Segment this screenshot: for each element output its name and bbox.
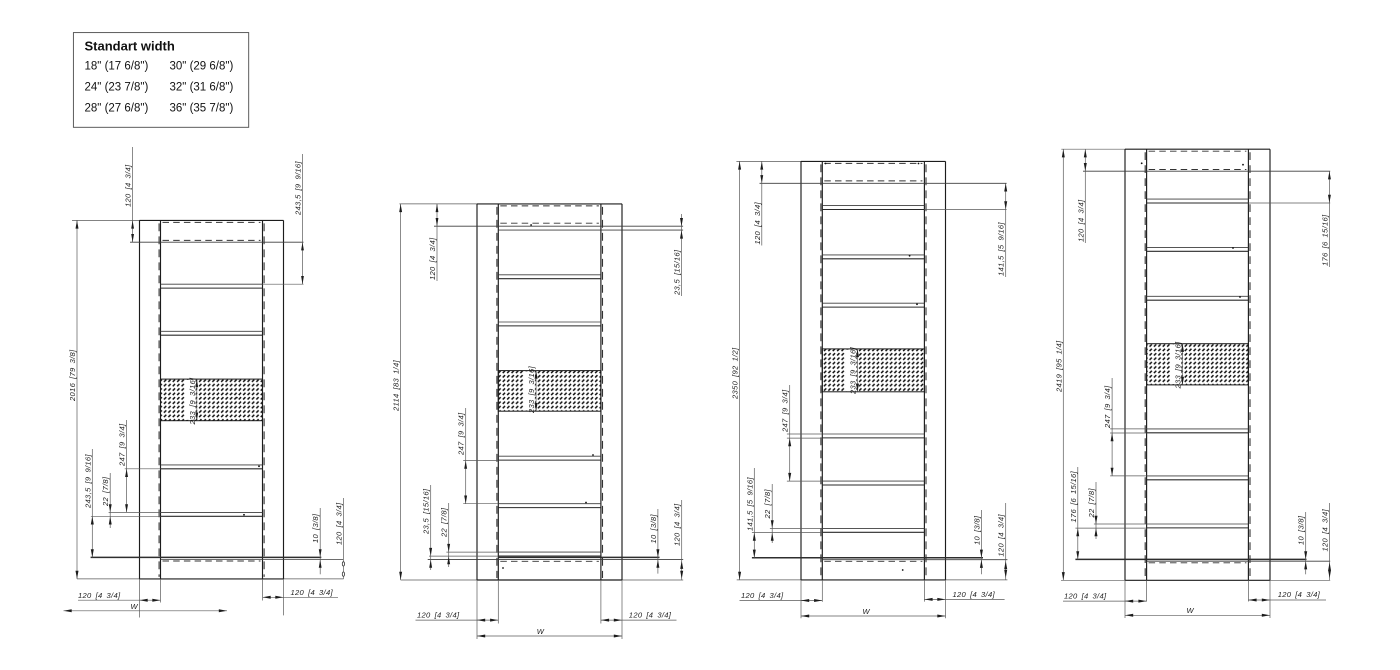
svg-text:247 [9 3/4]: 247 [9 3/4] — [1103, 385, 1112, 429]
svg-text:W: W — [1187, 606, 1195, 615]
svg-text:120 [4 3/4]: 120 [4 3/4] — [417, 611, 460, 620]
svg-text:120 [4 3/4]: 120 [4 3/4] — [334, 502, 343, 545]
svg-text:141,5 [5 9/16]: 141,5 [5 9/16] — [745, 477, 754, 531]
svg-text:Standart width: Standart width — [85, 39, 175, 54]
svg-text:10 [3/8]: 10 [3/8] — [311, 513, 320, 543]
svg-text:120 [4 3/4]: 120 [4 3/4] — [1076, 199, 1085, 242]
svg-text:W: W — [131, 602, 139, 611]
svg-text:23,5 [15/16]: 23,5 [15/16] — [673, 249, 682, 296]
svg-text:2114 [83 1/4]: 2114 [83 1/4] — [392, 360, 401, 412]
svg-text:2419 [95 1/4]: 2419 [95 1/4] — [1054, 340, 1063, 393]
svg-text:120 [4 3/4]: 120 [4 3/4] — [741, 591, 784, 600]
svg-text:10 [3/8]: 10 [3/8] — [1297, 515, 1306, 545]
svg-text:22 [7/8]: 22 [7/8] — [1087, 488, 1096, 519]
svg-text:243,5 [9 9/16]: 243,5 [9 9/16] — [83, 454, 92, 509]
svg-text:10 [3/8]: 10 [3/8] — [972, 515, 981, 545]
svg-text:233 [9 3/16]: 233 [9 3/16] — [188, 377, 197, 426]
svg-text:233 [9 3/16]: 233 [9 3/16] — [527, 365, 536, 414]
svg-text:120 [4 3/4]: 120 [4 3/4] — [997, 514, 1006, 557]
svg-text:22 [7/8]: 22 [7/8] — [440, 507, 449, 538]
svg-text:120 [4 3/4]: 120 [4 3/4] — [953, 590, 996, 599]
svg-text:W: W — [863, 607, 871, 616]
svg-text:176 [6 15/16]: 176 [6 15/16] — [1320, 214, 1329, 266]
svg-text:120 [4 3/4]: 120 [4 3/4] — [1321, 509, 1330, 552]
svg-text:233 [9 3/16]: 233 [9 3/16] — [849, 346, 858, 395]
svg-text:32" (31 6/8"): 32" (31 6/8") — [170, 82, 234, 94]
svg-text:247 [9 3/4]: 247 [9 3/4] — [781, 389, 790, 433]
svg-text:120 [4 3/4]: 120 [4 3/4] — [428, 237, 437, 280]
svg-text:W: W — [537, 627, 545, 636]
svg-text:36" (35 7/8"): 36" (35 7/8") — [170, 103, 234, 115]
svg-text:243,5 [9 9/16]: 243,5 [9 9/16] — [294, 161, 303, 216]
svg-text:10 [3/8]: 10 [3/8] — [649, 514, 658, 544]
svg-text:120 [4 3/4]: 120 [4 3/4] — [753, 202, 762, 245]
svg-text:120 [4 3/4]: 120 [4 3/4] — [629, 611, 672, 620]
svg-text:120 [4 3/4]: 120 [4 3/4] — [78, 591, 121, 600]
svg-text:120 [4 3/4]: 120 [4 3/4] — [124, 164, 133, 207]
svg-text:30" (29 6/8"): 30" (29 6/8") — [170, 61, 234, 73]
svg-text:2016 [79 3/8]: 2016 [79 3/8] — [68, 349, 77, 402]
svg-text:120 [4 3/4]: 120 [4 3/4] — [1278, 590, 1321, 599]
svg-text:141,5 [5 9/16]: 141,5 [5 9/16] — [997, 222, 1006, 276]
svg-text:18" (17 6/8"): 18" (17 6/8") — [85, 61, 149, 73]
svg-text:24" (23 7/8"): 24" (23 7/8") — [85, 82, 149, 94]
svg-text:120 [4 3/4]: 120 [4 3/4] — [673, 503, 682, 546]
svg-text:120 [4 3/4]: 120 [4 3/4] — [1064, 592, 1107, 601]
svg-text:233 [9 3/16]: 233 [9 3/16] — [1174, 341, 1183, 390]
svg-text:22 [7/8]: 22 [7/8] — [763, 489, 772, 520]
svg-text:28" (27 6/8"): 28" (27 6/8") — [85, 103, 149, 115]
svg-text:247 [9 3/4]: 247 [9 3/4] — [118, 423, 127, 467]
svg-text:176 [6 15/16]: 176 [6 15/16] — [1069, 470, 1078, 522]
svg-text:22 [7/8]: 22 [7/8] — [101, 476, 110, 507]
svg-text:23,5 [15/16]: 23,5 [15/16] — [422, 488, 431, 535]
svg-text:120 [4 3/4]: 120 [4 3/4] — [291, 588, 334, 597]
svg-text:2350 [92 1/2]: 2350 [92 1/2] — [731, 347, 740, 400]
svg-text:247 [9 3/4]: 247 [9 3/4] — [457, 412, 466, 456]
